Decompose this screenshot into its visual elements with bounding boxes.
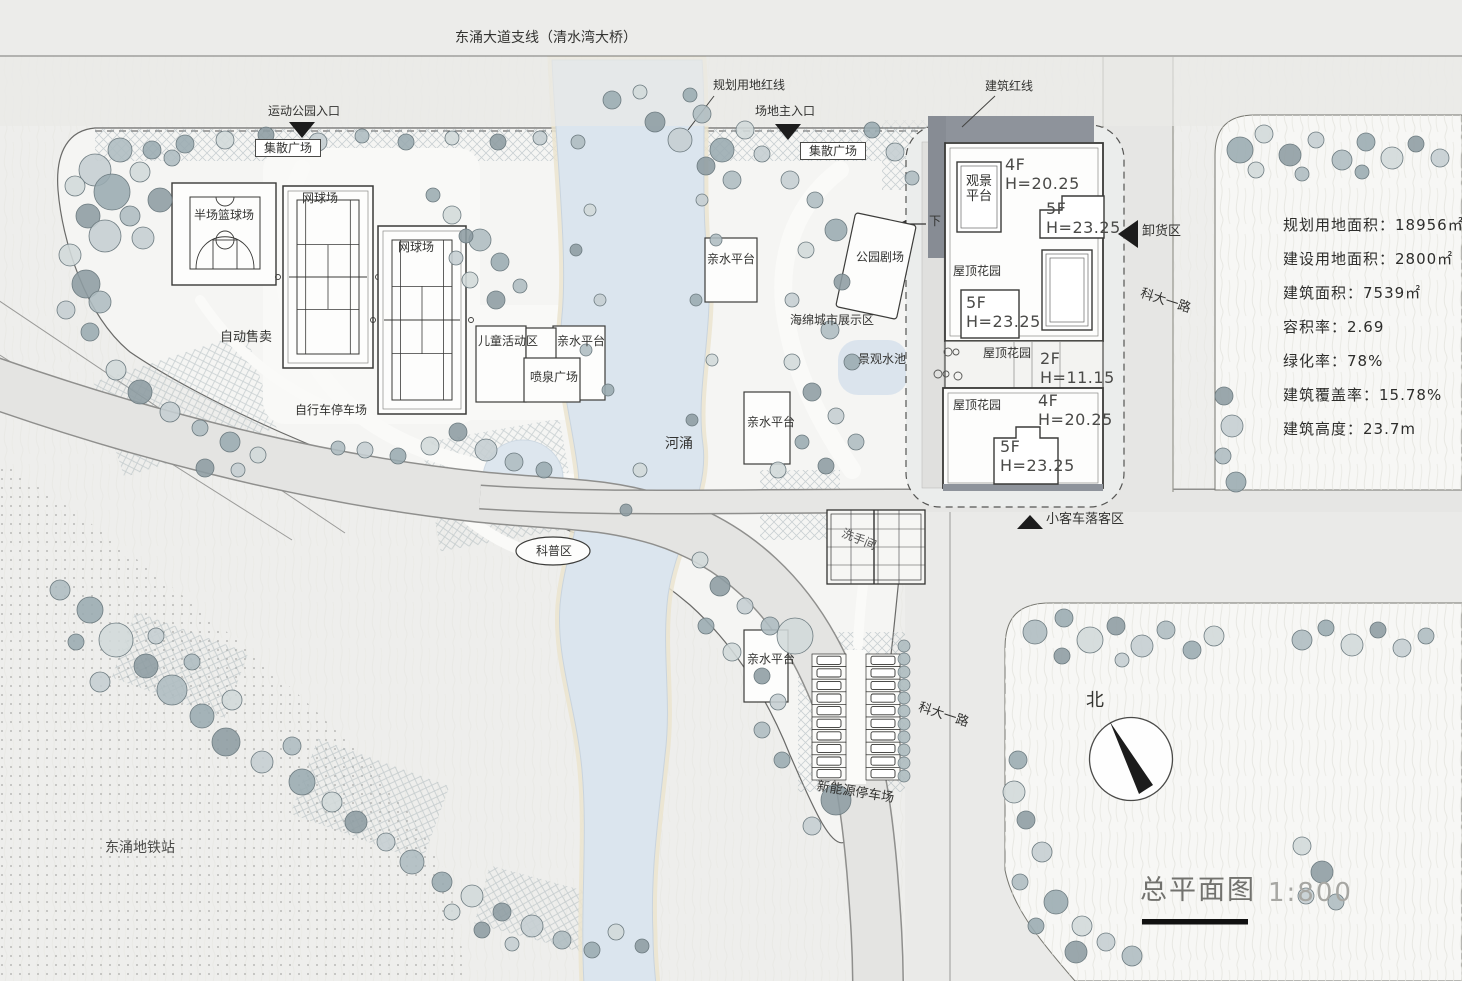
building-c-5f-label: 5F H=23.25 bbox=[1000, 438, 1075, 476]
tree-icon bbox=[148, 188, 172, 212]
tree-icon bbox=[160, 402, 180, 422]
tree-icon bbox=[212, 728, 240, 756]
car-icon bbox=[871, 669, 895, 677]
tree-icon bbox=[886, 143, 904, 161]
tree-icon bbox=[754, 722, 770, 738]
stat-planning-area: 规划用地面积：18956㎡ bbox=[1283, 214, 1462, 235]
tree-icon bbox=[536, 462, 552, 478]
tree-icon bbox=[68, 634, 84, 650]
science-area-label: 科普区 bbox=[536, 544, 572, 558]
tree-icon bbox=[898, 744, 910, 756]
tree-icon bbox=[57, 301, 75, 319]
tree-icon bbox=[602, 384, 614, 396]
tree-icon bbox=[781, 171, 799, 189]
tree-icon bbox=[1122, 946, 1142, 966]
tree-icon bbox=[164, 150, 180, 166]
tree-icon bbox=[1332, 150, 1352, 170]
tree-icon bbox=[784, 354, 800, 370]
b1-height: H=20.25 bbox=[1005, 174, 1080, 193]
tree-icon bbox=[723, 171, 741, 189]
tree-icon bbox=[706, 354, 718, 366]
tree-icon bbox=[1381, 147, 1403, 169]
tree-icon bbox=[698, 618, 714, 634]
stat-far: 容积率：2.69 bbox=[1283, 316, 1462, 337]
building-a-floors-label: 4F H=20.25 bbox=[1005, 156, 1080, 194]
tree-icon bbox=[1055, 609, 1073, 627]
terrace-2f-label: 2F H=11.15 bbox=[1040, 350, 1115, 388]
b3-floors: 4F bbox=[1038, 391, 1058, 410]
tree-icon bbox=[686, 414, 698, 426]
car-icon bbox=[817, 656, 841, 664]
tree-icon bbox=[1023, 620, 1047, 644]
b2-floors: 5F bbox=[966, 293, 986, 312]
tree-icon bbox=[620, 504, 632, 516]
tree-icon bbox=[608, 924, 624, 940]
tree-icon bbox=[148, 628, 164, 644]
tree-icon bbox=[184, 654, 200, 670]
tree-icon bbox=[864, 122, 880, 138]
sponge-city-label: 海绵城市展示区 bbox=[790, 313, 874, 327]
tree-icon bbox=[533, 131, 547, 145]
car-icon bbox=[871, 694, 895, 702]
tree-icon bbox=[1044, 890, 1068, 914]
roof-garden-label-1: 屋顶花园 bbox=[953, 264, 1001, 278]
restroom-structure bbox=[827, 510, 925, 584]
car-icon bbox=[871, 732, 895, 740]
tree-icon bbox=[737, 598, 753, 614]
stat-height: 建筑高度：23.7m bbox=[1283, 418, 1462, 439]
ramp-down-label: 下 bbox=[929, 214, 941, 228]
tree-icon bbox=[449, 251, 463, 265]
tree-icon bbox=[693, 105, 711, 123]
terrace-floors: 2F bbox=[1040, 349, 1060, 368]
tennis-court bbox=[276, 186, 381, 368]
tree-icon bbox=[216, 131, 234, 149]
tree-icon bbox=[322, 792, 342, 812]
car-icon bbox=[871, 707, 895, 715]
master-plan-canvas: 东涌大道支线（清水湾大桥） 规划用地红线 建筑红线 运动公园入口 场地主入口 集… bbox=[0, 0, 1462, 981]
unloading-label: 卸货区 bbox=[1142, 224, 1181, 239]
tree-icon bbox=[1295, 167, 1309, 181]
main-entrance-label: 场地主入口 bbox=[755, 104, 815, 118]
tree-icon bbox=[283, 737, 301, 755]
roof-garden-label-3: 屋顶花园 bbox=[953, 398, 1001, 412]
tree-icon bbox=[1107, 617, 1125, 635]
tree-icon bbox=[553, 931, 571, 949]
tree-icon bbox=[1032, 842, 1052, 862]
tree-icon bbox=[1408, 136, 1424, 152]
theater-label: 公园剧场 bbox=[856, 250, 904, 264]
tree-icon bbox=[1255, 125, 1273, 143]
tree-icon bbox=[785, 293, 799, 307]
tree-icon bbox=[1204, 626, 1224, 646]
tree-icon bbox=[513, 279, 527, 293]
tree-icon bbox=[487, 291, 505, 309]
tree-icon bbox=[251, 751, 273, 773]
tree-icon bbox=[1003, 781, 1025, 803]
tree-icon bbox=[190, 704, 214, 728]
tree-icon bbox=[1009, 751, 1027, 769]
tree-icon bbox=[710, 576, 730, 596]
tree-icon bbox=[475, 439, 497, 461]
tree-icon bbox=[898, 705, 910, 717]
tree-icon bbox=[459, 229, 473, 243]
tree-icon bbox=[898, 666, 910, 678]
tree-icon bbox=[250, 447, 266, 463]
tree-icon bbox=[594, 294, 606, 306]
tree-icon bbox=[584, 942, 600, 958]
tree-icon bbox=[377, 833, 395, 851]
tree-icon bbox=[443, 206, 461, 224]
car-icon bbox=[871, 719, 895, 727]
tree-icon bbox=[723, 643, 741, 661]
tree-icon bbox=[633, 463, 647, 477]
tree-icon bbox=[1215, 448, 1231, 464]
tree-icon bbox=[770, 462, 786, 478]
waterfront-label-3: 亲水平台 bbox=[747, 652, 795, 666]
tree-icon bbox=[220, 432, 240, 452]
parking-aisle bbox=[846, 650, 866, 784]
car-icon bbox=[871, 744, 895, 752]
car-icon bbox=[871, 681, 895, 689]
car-icon bbox=[817, 719, 841, 727]
tree-icon bbox=[222, 690, 242, 710]
tree-icon bbox=[1131, 635, 1153, 657]
stat-construction-area: 建设用地面积：2800㎡ bbox=[1283, 248, 1462, 269]
tree-icon bbox=[357, 442, 373, 458]
tree-icon bbox=[462, 272, 478, 288]
tree-icon bbox=[120, 206, 140, 226]
tree-icon bbox=[898, 640, 910, 652]
tree-icon bbox=[1308, 132, 1324, 148]
tree-icon bbox=[570, 244, 582, 256]
tree-icon bbox=[1012, 874, 1028, 890]
tree-icon bbox=[1097, 933, 1115, 951]
tree-icon bbox=[1226, 472, 1246, 492]
north-compass bbox=[1090, 718, 1173, 801]
tree-icon bbox=[1115, 653, 1129, 667]
tree-icon bbox=[426, 188, 440, 202]
tree-icon bbox=[398, 134, 414, 150]
basketball-court bbox=[172, 183, 276, 285]
car-icon bbox=[817, 732, 841, 740]
tree-icon bbox=[603, 91, 621, 109]
b3b-floors: 5F bbox=[1000, 437, 1020, 456]
waterfront-platform-1 bbox=[705, 238, 757, 302]
roof-shadow-left bbox=[928, 116, 946, 258]
plan-title: 总平面图 bbox=[1140, 868, 1256, 907]
tree-icon bbox=[1293, 837, 1311, 855]
tree-icon bbox=[505, 453, 523, 471]
vending-label: 自动售卖 bbox=[220, 330, 272, 345]
tree-icon bbox=[1215, 387, 1233, 405]
tree-icon bbox=[444, 904, 460, 920]
tree-icon bbox=[696, 194, 708, 206]
tree-icon bbox=[400, 850, 424, 874]
car-icon bbox=[817, 669, 841, 677]
b3b-height: H=23.25 bbox=[1000, 456, 1075, 475]
tree-icon bbox=[1072, 916, 1092, 936]
bike-parking-label: 自行车停车场 bbox=[295, 403, 367, 417]
tree-icon bbox=[491, 253, 509, 271]
tree-icon bbox=[445, 131, 459, 145]
tree-icon bbox=[157, 675, 187, 705]
tree-icon bbox=[898, 679, 910, 691]
north-label: 北 bbox=[1086, 686, 1104, 712]
tree-icon bbox=[635, 939, 649, 953]
tree-icon bbox=[905, 171, 919, 185]
car-icon bbox=[817, 681, 841, 689]
tree-icon bbox=[421, 437, 439, 455]
tree-icon bbox=[231, 463, 245, 477]
tree-icon bbox=[390, 448, 406, 464]
tree-icon bbox=[710, 234, 722, 246]
plan-scale: 1:800 bbox=[1268, 878, 1353, 908]
car-icon bbox=[817, 744, 841, 752]
tree-icon bbox=[1357, 133, 1375, 151]
planning-red-line-label: 规划用地红线 bbox=[713, 78, 785, 92]
tree-icon bbox=[770, 694, 786, 710]
tree-icon bbox=[94, 174, 130, 210]
tree-icon bbox=[825, 219, 847, 241]
tree-icon bbox=[1292, 630, 1312, 650]
tree-icon bbox=[50, 580, 70, 600]
tree-icon bbox=[81, 323, 99, 341]
tree-icon bbox=[777, 618, 813, 654]
tree-icon bbox=[848, 434, 864, 450]
tree-icon bbox=[633, 85, 647, 99]
tree-icon bbox=[1221, 415, 1243, 437]
tree-icon bbox=[1279, 144, 1301, 166]
tree-icon bbox=[355, 129, 369, 143]
building-c-floors-label: 4F H=20.25 bbox=[1038, 392, 1113, 430]
site-statistics: 规划用地面积：18956㎡ 建设用地面积：2800㎡ 建筑面积：7539㎡ 容积… bbox=[1283, 214, 1462, 452]
tree-icon bbox=[89, 220, 121, 252]
terrace-height: H=11.15 bbox=[1040, 368, 1115, 387]
roof-garden-label-2: 屋顶花园 bbox=[983, 346, 1031, 360]
tree-icon bbox=[196, 459, 214, 477]
tree-icon bbox=[645, 112, 665, 132]
tree-icon bbox=[1028, 918, 1044, 934]
tree-icon bbox=[584, 204, 596, 216]
tree-icon bbox=[1248, 162, 1264, 178]
tree-icon bbox=[108, 138, 132, 162]
waterfront-label-4: 亲水平台 bbox=[557, 334, 605, 348]
tree-icon bbox=[77, 597, 103, 623]
tree-icon bbox=[331, 441, 345, 455]
car-icon bbox=[817, 694, 841, 702]
tree-icon bbox=[1065, 941, 1087, 963]
tree-icon bbox=[490, 134, 506, 150]
tree-icon bbox=[432, 872, 452, 892]
tennis-label-1: 网球场 bbox=[302, 191, 338, 205]
tree-icon bbox=[106, 360, 126, 380]
tree-icon bbox=[289, 769, 315, 795]
tree-icon bbox=[690, 294, 702, 306]
tree-icon bbox=[1370, 622, 1386, 638]
road-label-top: 东涌大道支线（清水湾大桥） bbox=[455, 30, 637, 47]
tree-icon bbox=[192, 420, 208, 436]
tree-icon bbox=[807, 192, 823, 208]
stat-green-ratio: 绿化率：78% bbox=[1283, 350, 1462, 371]
tree-icon bbox=[345, 811, 367, 833]
tree-icon bbox=[1077, 627, 1103, 653]
tree-icon bbox=[898, 653, 910, 665]
building-a-5f-label: 5F H=23.25 bbox=[1046, 200, 1121, 238]
tree-icon bbox=[795, 435, 809, 449]
car-icon bbox=[817, 757, 841, 765]
tree-icon bbox=[130, 162, 150, 182]
children-area-label: 儿童活动区 bbox=[478, 334, 538, 348]
tree-icon bbox=[461, 885, 483, 907]
tree-icon bbox=[754, 146, 770, 162]
tree-icon bbox=[1227, 137, 1253, 163]
tree-icon bbox=[521, 915, 543, 937]
tree-icon bbox=[818, 458, 834, 474]
tennis-label-2: 网球场 bbox=[398, 240, 434, 254]
b1-floors: 4F bbox=[1005, 155, 1025, 174]
viewing-platform-label: 观景平台 bbox=[962, 174, 996, 205]
car-icon bbox=[817, 770, 841, 778]
car-icon bbox=[871, 757, 895, 765]
b2-height: H=23.25 bbox=[966, 312, 1041, 331]
tree-icon bbox=[1355, 165, 1369, 179]
courtyard bbox=[1042, 250, 1092, 330]
car-icon bbox=[871, 656, 895, 664]
tree-icon bbox=[697, 157, 715, 175]
roof-shadow-bottom bbox=[943, 484, 1103, 491]
metro-station-label: 东涌地铁站 bbox=[105, 840, 175, 857]
tree-icon bbox=[571, 135, 585, 149]
title-underline bbox=[1142, 919, 1248, 925]
tree-icon bbox=[761, 617, 779, 635]
building-red-line-label: 建筑红线 bbox=[985, 79, 1033, 93]
tree-icon bbox=[1318, 620, 1334, 636]
tree-icon bbox=[89, 291, 111, 313]
tree-icon bbox=[132, 227, 154, 249]
stat-building-area: 建筑面积：7539㎡ bbox=[1283, 282, 1462, 303]
tree-icon bbox=[803, 383, 821, 401]
plan-drawing bbox=[0, 0, 1462, 981]
tree-icon bbox=[692, 552, 708, 568]
b1b-height: H=23.25 bbox=[1046, 218, 1121, 237]
tree-icon bbox=[710, 138, 734, 162]
tree-icon bbox=[59, 244, 81, 266]
b3-height: H=20.25 bbox=[1038, 410, 1113, 429]
tree-icon bbox=[834, 274, 850, 290]
tree-icon bbox=[1341, 634, 1363, 656]
roof-shadow-top bbox=[928, 116, 1094, 142]
car-icon bbox=[817, 707, 841, 715]
tree-icon bbox=[1054, 648, 1070, 664]
ev-parking-lot bbox=[812, 640, 910, 784]
tree-icon bbox=[898, 770, 910, 782]
tree-icon bbox=[176, 135, 194, 153]
tree-icon bbox=[798, 242, 814, 258]
tree-icon bbox=[898, 718, 910, 730]
tree-icon bbox=[143, 141, 161, 159]
tree-icon bbox=[474, 922, 490, 938]
park-entrance-label: 运动公园入口 bbox=[268, 104, 340, 118]
stat-coverage: 建筑覆盖率：15.78% bbox=[1283, 384, 1462, 405]
tree-icon bbox=[803, 817, 821, 835]
basketball-label: 半场篮球场 bbox=[194, 208, 254, 222]
tree-icon bbox=[668, 128, 692, 152]
tree-icon bbox=[90, 672, 110, 692]
dropoff-label: 小客车落客区 bbox=[1046, 512, 1124, 527]
tree-icon bbox=[1431, 149, 1449, 167]
tree-icon bbox=[774, 752, 790, 768]
tree-icon bbox=[754, 668, 770, 684]
tree-icon bbox=[736, 121, 754, 139]
car-icon bbox=[871, 770, 895, 778]
tree-icon bbox=[1017, 811, 1035, 829]
tree-icon bbox=[898, 692, 910, 704]
tree-icon bbox=[683, 88, 697, 102]
b1b-floors: 5F bbox=[1046, 199, 1066, 218]
tree-icon bbox=[898, 757, 910, 769]
tree-icon bbox=[1157, 621, 1175, 639]
waterfront-label-2: 亲水平台 bbox=[747, 415, 795, 429]
tree-icon bbox=[1183, 641, 1201, 659]
tree-icon bbox=[99, 623, 133, 657]
tree-icon bbox=[505, 937, 519, 951]
tree-icon bbox=[1418, 628, 1434, 644]
waterfront-label-1: 亲水平台 bbox=[707, 252, 755, 266]
plaza-label-west: 集散广场 bbox=[255, 139, 321, 157]
fountain-label: 喷泉广场 bbox=[530, 370, 578, 384]
tree-icon bbox=[493, 903, 511, 921]
top-road bbox=[0, 0, 1462, 56]
tree-icon bbox=[449, 423, 467, 441]
tree-icon bbox=[828, 408, 844, 424]
tree-icon bbox=[1393, 639, 1411, 657]
river-label: 河涌 bbox=[665, 436, 693, 453]
tree-icon bbox=[898, 731, 910, 743]
tree-icon bbox=[65, 176, 85, 196]
building-b-5f-label: 5F H=23.25 bbox=[966, 294, 1041, 332]
tree-icon bbox=[128, 380, 152, 404]
pool-label: 景观水池 bbox=[858, 352, 906, 366]
plaza-label-east: 集散广场 bbox=[800, 142, 866, 160]
tree-icon bbox=[134, 654, 158, 678]
